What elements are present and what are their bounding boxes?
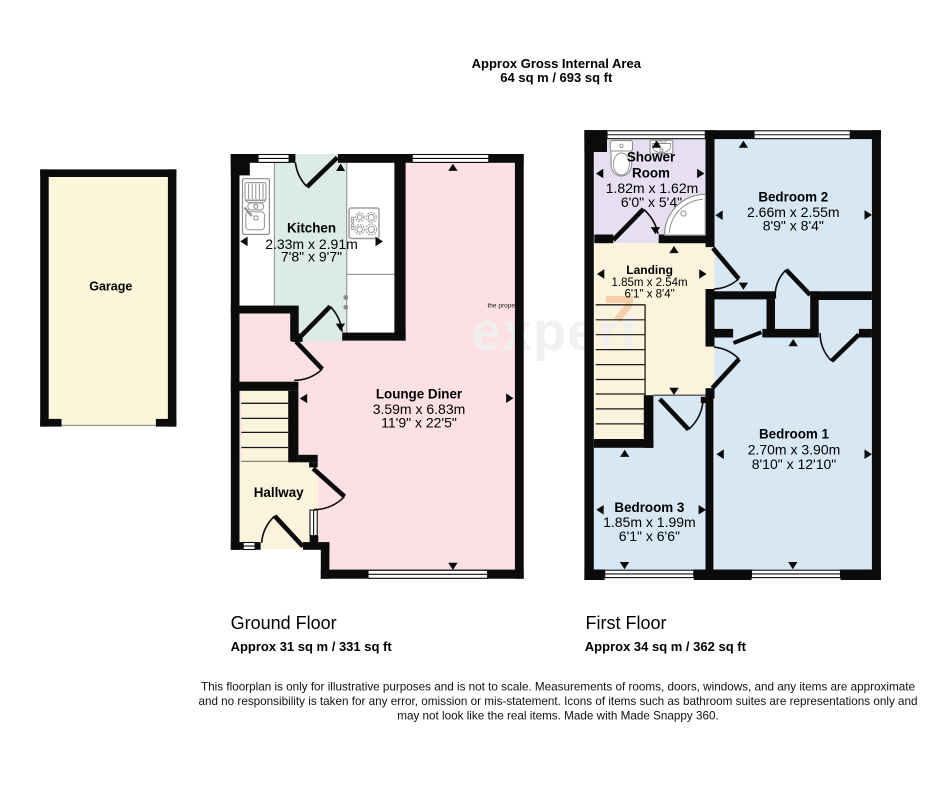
svg-text:11'9" x 22'5": 11'9" x 22'5" (381, 415, 457, 431)
svg-text:Kitchen: Kitchen (287, 221, 336, 236)
svg-text:First Floor: First Floor (586, 613, 667, 633)
svg-text:8'10" x 12'10": 8'10" x 12'10" (752, 456, 837, 472)
svg-text:Garage: Garage (89, 280, 132, 294)
svg-text:6'0" x 5'4": 6'0" x 5'4" (621, 194, 682, 210)
svg-text:6'1" x 8'4": 6'1" x 8'4" (624, 288, 674, 300)
svg-text:Lounge Diner: Lounge Diner (376, 387, 463, 402)
svg-text:8'9" x 8'4": 8'9" x 8'4" (763, 217, 824, 233)
svg-text:Hallway: Hallway (254, 485, 304, 500)
svg-text:Approx 31 sq m / 331 sq ft: Approx 31 sq m / 331 sq ft (231, 639, 393, 654)
svg-text:Landing: Landing (626, 263, 673, 277)
svg-text:Bedroom 1: Bedroom 1 (759, 426, 829, 441)
svg-text:1.85m x 2.54m: 1.85m x 2.54m (612, 277, 688, 289)
svg-text:7'8" x 9'7": 7'8" x 9'7" (281, 249, 342, 265)
svg-text:may not look like the real ite: may not look like the real items. Made w… (397, 710, 719, 723)
svg-text:Shower: Shower (627, 150, 676, 165)
svg-text:Bedroom 2: Bedroom 2 (758, 190, 828, 205)
svg-text:Room: Room (632, 166, 670, 181)
svg-text:expert: expert (471, 302, 639, 362)
svg-text:and no responsibility is taken: and no responsibility is taken for any e… (198, 695, 917, 708)
svg-text:Approx Gross Internal Area: Approx Gross Internal Area (472, 56, 642, 71)
svg-text:Approx 34 sq m / 362 sq ft: Approx 34 sq m / 362 sq ft (585, 639, 747, 654)
svg-text:Ground Floor: Ground Floor (231, 613, 337, 633)
svg-text:6'1" x 6'6": 6'1" x 6'6" (619, 528, 680, 544)
svg-text:This floorplan is only for ill: This floorplan is only for illustrative … (201, 680, 915, 693)
svg-text:64 sq m / 693 sq ft: 64 sq m / 693 sq ft (500, 70, 613, 85)
